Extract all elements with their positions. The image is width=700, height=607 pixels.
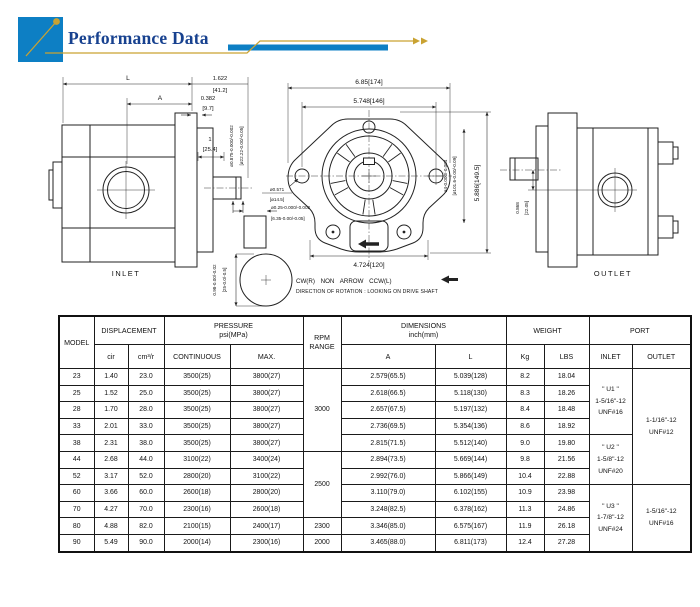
cell-model: 60: [59, 485, 94, 502]
cell-max: 3800(27): [230, 418, 303, 435]
performance-table: MODEL DISPLACEMENT PRESSURE psi(MPa) RPM…: [58, 315, 692, 553]
cell-model: 23: [59, 369, 94, 386]
cell-cm3r: 38.0: [128, 435, 164, 452]
outlet-side-view: 0.868 [22.05] OUTLET: [500, 113, 678, 278]
cell-inlet-port: " U2 " 1-5/8"-12 UNF#20: [589, 435, 632, 485]
cell-kg: 10.4: [506, 468, 544, 485]
dim-0382-in: 0.382: [201, 96, 216, 102]
dim-0382-mm: [9.7]: [202, 106, 214, 112]
rotation-note: CW(R) NON ARROW CCW(L): [296, 278, 392, 285]
dim-key-w-mm: [6.35-0.00/-0.05]: [271, 216, 305, 221]
dim-shaft-in: ø0.875-0.000/-0.002: [229, 125, 234, 167]
col-header-weight: WEIGHT: [506, 316, 589, 345]
cell-cm3r: 25.0: [128, 385, 164, 402]
cell-dim-a: 2.657(67.5): [341, 402, 435, 419]
cell-max: 2800(20): [230, 485, 303, 502]
cell-cir: 5.49: [94, 534, 128, 551]
cell-lbs: 18.48: [544, 402, 589, 419]
cell-inlet-port: " U3 " 1-7/8"-12 UNF#24: [589, 485, 632, 552]
dim-key-len-in: 0.98-0.00/-0.02: [212, 264, 217, 296]
dim-pilot-in: ø4-0.000/-0.004: [443, 159, 448, 192]
cell-dim-l: 5.669(144): [435, 451, 506, 468]
cell-model: 28: [59, 402, 94, 419]
col-header-lbs: LBS: [544, 345, 589, 369]
col-header-outlet: OUTLET: [632, 345, 691, 369]
cell-cm3r: 60.0: [128, 485, 164, 502]
dim-shaft-mm: [ø22.22-0.00/-0.05]: [239, 126, 244, 165]
col-header-cm3r: cm³/r: [128, 345, 164, 369]
cell-rpm: 2000: [303, 534, 341, 551]
col-header-dimensions: DIMENSIONS inch(mm): [341, 316, 506, 345]
cell-max: 3100(22): [230, 468, 303, 485]
cell-lbs: 26.18: [544, 518, 589, 535]
cell-dim-l: 5.866(149): [435, 468, 506, 485]
cell-kg: 8.3: [506, 385, 544, 402]
dim-0868-in: 0.868: [515, 202, 520, 214]
outlet-label: OUTLET: [594, 269, 632, 278]
cell-continuous: 2600(18): [164, 485, 230, 502]
col-header-model: MODEL: [59, 316, 94, 369]
dim-685: 6.85[174]: [355, 79, 383, 86]
cell-cir: 2.68: [94, 451, 128, 468]
table-row: 382.3138.03500(25)3800(27)2.815(71.5)5.5…: [59, 435, 691, 452]
cell-cm3r: 70.0: [128, 501, 164, 518]
cell-cm3r: 82.0: [128, 518, 164, 535]
cell-cm3r: 28.0: [128, 402, 164, 419]
cell-kg: 9.8: [506, 451, 544, 468]
cell-model: 80: [59, 518, 94, 535]
cell-cm3r: 44.0: [128, 451, 164, 468]
col-header-displacement: DISPLACEMENT: [94, 316, 164, 345]
cell-cm3r: 52.0: [128, 468, 164, 485]
cell-outlet-port: 1-5/16"-12 UNF#16: [632, 485, 691, 552]
cell-lbs: 22.88: [544, 468, 589, 485]
col-header-continuous: CONTINUOUS: [164, 345, 230, 369]
cell-continuous: 2300(16): [164, 501, 230, 518]
cell-continuous: 3500(25): [164, 402, 230, 419]
cell-continuous: 3500(25): [164, 385, 230, 402]
cell-model: 52: [59, 468, 94, 485]
col-header-rpm-range: RPM RANGE: [303, 316, 341, 369]
cell-cir: 2.01: [94, 418, 128, 435]
cell-dim-a: 2.894(73.5): [341, 451, 435, 468]
cell-continuous: 3500(25): [164, 418, 230, 435]
dim-1622-mm: [41.2]: [213, 88, 228, 94]
cell-cm3r: 33.0: [128, 418, 164, 435]
cell-cir: 2.31: [94, 435, 128, 452]
dim-pilot-mm: [ø101.6-0.00/-0.09]: [452, 156, 457, 195]
cell-dim-a: 3.346(85.0): [341, 518, 435, 535]
cell-max: 2600(18): [230, 501, 303, 518]
cell-rpm: 2300: [303, 518, 341, 535]
cell-rpm: 2500: [303, 451, 341, 517]
cell-kg: 8.6: [506, 418, 544, 435]
cell-dim-a: 2.579(65.5): [341, 369, 435, 386]
cell-rpm: 3000: [303, 369, 341, 452]
inlet-side-view: L 1.622 [41.2] A 0.382 [9.7] 1 [25.4] ø0…: [49, 75, 254, 278]
cell-lbs: 21.56: [544, 451, 589, 468]
cell-dim-a: 2.736(69.5): [341, 418, 435, 435]
cell-model: 38: [59, 435, 94, 452]
front-view: 6.85[174] 5.748[146] 4.724[120] 5.886[14…: [262, 79, 491, 295]
cell-dim-a: 3.248(82.5): [341, 501, 435, 518]
cell-outlet-port: 1-1/16"-12 UNF#12: [632, 369, 691, 485]
cell-dim-l: 6.102(155): [435, 485, 506, 502]
cell-model: 70: [59, 501, 94, 518]
dim-0868-mm: [22.05]: [524, 201, 529, 215]
cell-lbs: 18.92: [544, 418, 589, 435]
cell-kg: 8.4: [506, 402, 544, 419]
cell-dim-l: 5.197(132): [435, 402, 506, 419]
cell-max: 3800(27): [230, 369, 303, 386]
cell-continuous: 2000(14): [164, 534, 230, 551]
col-header-pressure: PRESSURE psi(MPa): [164, 316, 303, 345]
cell-kg: 10.9: [506, 485, 544, 502]
pump-drawings: L 1.622 [41.2] A 0.382 [9.7] 1 [25.4] ø0…: [0, 0, 700, 315]
cell-lbs: 24.86: [544, 501, 589, 518]
cell-dim-a: 2.992(76.0): [341, 468, 435, 485]
cell-max: 2400(17): [230, 518, 303, 535]
dim-1-in: 1: [208, 137, 211, 143]
inlet-label: INLET: [112, 269, 140, 278]
col-header-kg: Kg: [506, 345, 544, 369]
cell-dim-a: 3.110(79.0): [341, 485, 435, 502]
dim-0571-in: ø0.571: [270, 187, 285, 192]
dim-1-mm: [25.4]: [203, 147, 218, 153]
cell-model: 33: [59, 418, 94, 435]
cell-cir: 4.88: [94, 518, 128, 535]
cell-continuous: 3500(25): [164, 435, 230, 452]
cell-dim-a: 2.618(66.5): [341, 385, 435, 402]
table-row: 231.4023.03500(25)3800(27)30002.579(65.5…: [59, 369, 691, 386]
cell-dim-l: 6.811(173): [435, 534, 506, 551]
cell-dim-l: 5.354(136): [435, 418, 506, 435]
dim-key-w-in: ø0.25-0.000/-0.002: [271, 205, 311, 210]
page: Performance Data: [0, 0, 700, 607]
cell-lbs: 23.98: [544, 485, 589, 502]
cell-cir: 3.66: [94, 485, 128, 502]
cell-lbs: 19.80: [544, 435, 589, 452]
col-header-inlet: INLET: [589, 345, 632, 369]
cell-continuous: 2800(20): [164, 468, 230, 485]
cell-dim-a: 3.465(88.0): [341, 534, 435, 551]
dim-4724: 4.724[120]: [353, 262, 384, 269]
cell-kg: 11.9: [506, 518, 544, 535]
col-header-dim-l: L: [435, 345, 506, 369]
rotation-arrow-icon: [358, 240, 379, 249]
cell-model: 90: [59, 534, 94, 551]
cell-lbs: 27.28: [544, 534, 589, 551]
cell-kg: 11.3: [506, 501, 544, 518]
col-header-cir: cir: [94, 345, 128, 369]
cell-cir: 1.40: [94, 369, 128, 386]
cell-lbs: 18.04: [544, 369, 589, 386]
cell-kg: 12.4: [506, 534, 544, 551]
cell-dim-l: 5.512(140): [435, 435, 506, 452]
dim-5886: 5.886[149.5]: [474, 165, 481, 202]
col-header-max: MAX.: [230, 345, 303, 369]
cell-dim-l: 5.039(128): [435, 369, 506, 386]
cell-continuous: 2100(15): [164, 518, 230, 535]
cell-kg: 8.2: [506, 369, 544, 386]
cell-cm3r: 90.0: [128, 534, 164, 551]
rotation-subnote: DIRECTION OF ROTATION : LOOKING ON DRIVE…: [296, 289, 438, 295]
cell-dim-l: 6.378(162): [435, 501, 506, 518]
cell-cm3r: 23.0: [128, 369, 164, 386]
pump-table-body: 231.4023.03500(25)3800(27)30002.579(65.5…: [59, 369, 691, 552]
dim-L-label: L: [126, 75, 130, 82]
cell-cir: 4.27: [94, 501, 128, 518]
cell-continuous: 3500(25): [164, 369, 230, 386]
header-row-2: cir cm³/r CONTINUOUS MAX. A L Kg LBS INL…: [59, 345, 691, 369]
dim-0571-mm: [ø14.5]: [270, 197, 284, 202]
table-row: 603.6660.02600(18)2800(20)3.110(79.0)6.1…: [59, 485, 691, 502]
cell-dim-l: 5.118(130): [435, 385, 506, 402]
cell-cir: 1.52: [94, 385, 128, 402]
cell-cir: 3.17: [94, 468, 128, 485]
cell-kg: 9.0: [506, 435, 544, 452]
dim-key-len-mm: [25-0.0/-0.5]: [222, 268, 227, 293]
col-header-port: PORT: [589, 316, 691, 345]
cell-dim-l: 6.575(167): [435, 518, 506, 535]
cell-inlet-port: " U1 " 1-5/16"-12 UNF#16: [589, 369, 632, 435]
dim-1622-in: 1.622: [213, 76, 228, 82]
cell-max: 3800(27): [230, 402, 303, 419]
cell-lbs: 18.26: [544, 385, 589, 402]
col-header-dim-a: A: [341, 345, 435, 369]
cell-model: 25: [59, 385, 94, 402]
cell-dim-a: 2.815(71.5): [341, 435, 435, 452]
ccw-arrow-icon: [441, 276, 458, 284]
cell-max: 3400(24): [230, 451, 303, 468]
dim-5748: 5.748[146]: [353, 98, 384, 105]
cell-max: 3800(27): [230, 385, 303, 402]
dim-A-label: A: [158, 95, 163, 102]
pump-spec-table: MODEL DISPLACEMENT PRESSURE psi(MPa) RPM…: [58, 315, 692, 553]
cell-cir: 1.70: [94, 402, 128, 419]
cell-model: 44: [59, 451, 94, 468]
cell-max: 2300(16): [230, 534, 303, 551]
cell-continuous: 3100(22): [164, 451, 230, 468]
header-row-1: MODEL DISPLACEMENT PRESSURE psi(MPa) RPM…: [59, 316, 691, 345]
cell-max: 3800(27): [230, 435, 303, 452]
